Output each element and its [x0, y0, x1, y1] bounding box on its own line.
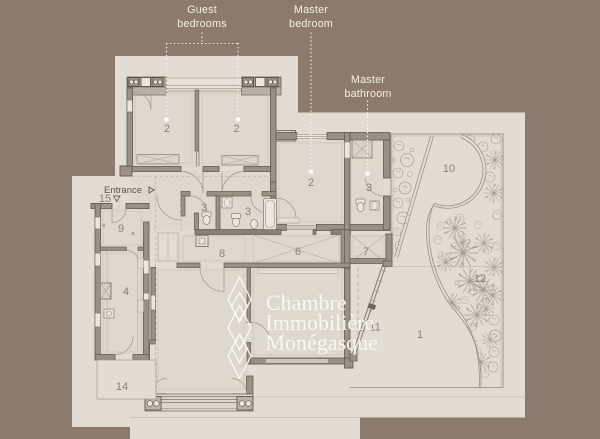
svg-text:3: 3: [366, 182, 372, 194]
svg-text:bathroom: bathroom: [344, 88, 391, 100]
svg-text:8: 8: [219, 248, 225, 260]
svg-text:6: 6: [295, 246, 301, 258]
svg-text:12: 12: [474, 273, 486, 285]
svg-text:1: 1: [417, 329, 423, 341]
svg-text:2: 2: [308, 177, 314, 189]
svg-text:2: 2: [233, 123, 239, 135]
svg-text:10: 10: [443, 163, 455, 175]
svg-text:bedrooms: bedrooms: [177, 18, 227, 30]
svg-text:7: 7: [363, 246, 369, 258]
svg-text:bedroom: bedroom: [289, 18, 333, 30]
svg-text:Master: Master: [351, 74, 385, 86]
svg-text:14: 14: [116, 381, 128, 393]
svg-text:2: 2: [164, 123, 170, 135]
svg-text:Monégasque: Monégasque: [266, 330, 378, 355]
svg-text:3: 3: [201, 202, 207, 214]
svg-text:3: 3: [245, 206, 251, 218]
svg-text:Guest: Guest: [187, 4, 217, 16]
svg-text:9: 9: [118, 223, 124, 235]
svg-text:Master: Master: [294, 4, 328, 16]
svg-text:4: 4: [123, 286, 129, 298]
svg-text:Entrance: Entrance: [104, 185, 142, 196]
